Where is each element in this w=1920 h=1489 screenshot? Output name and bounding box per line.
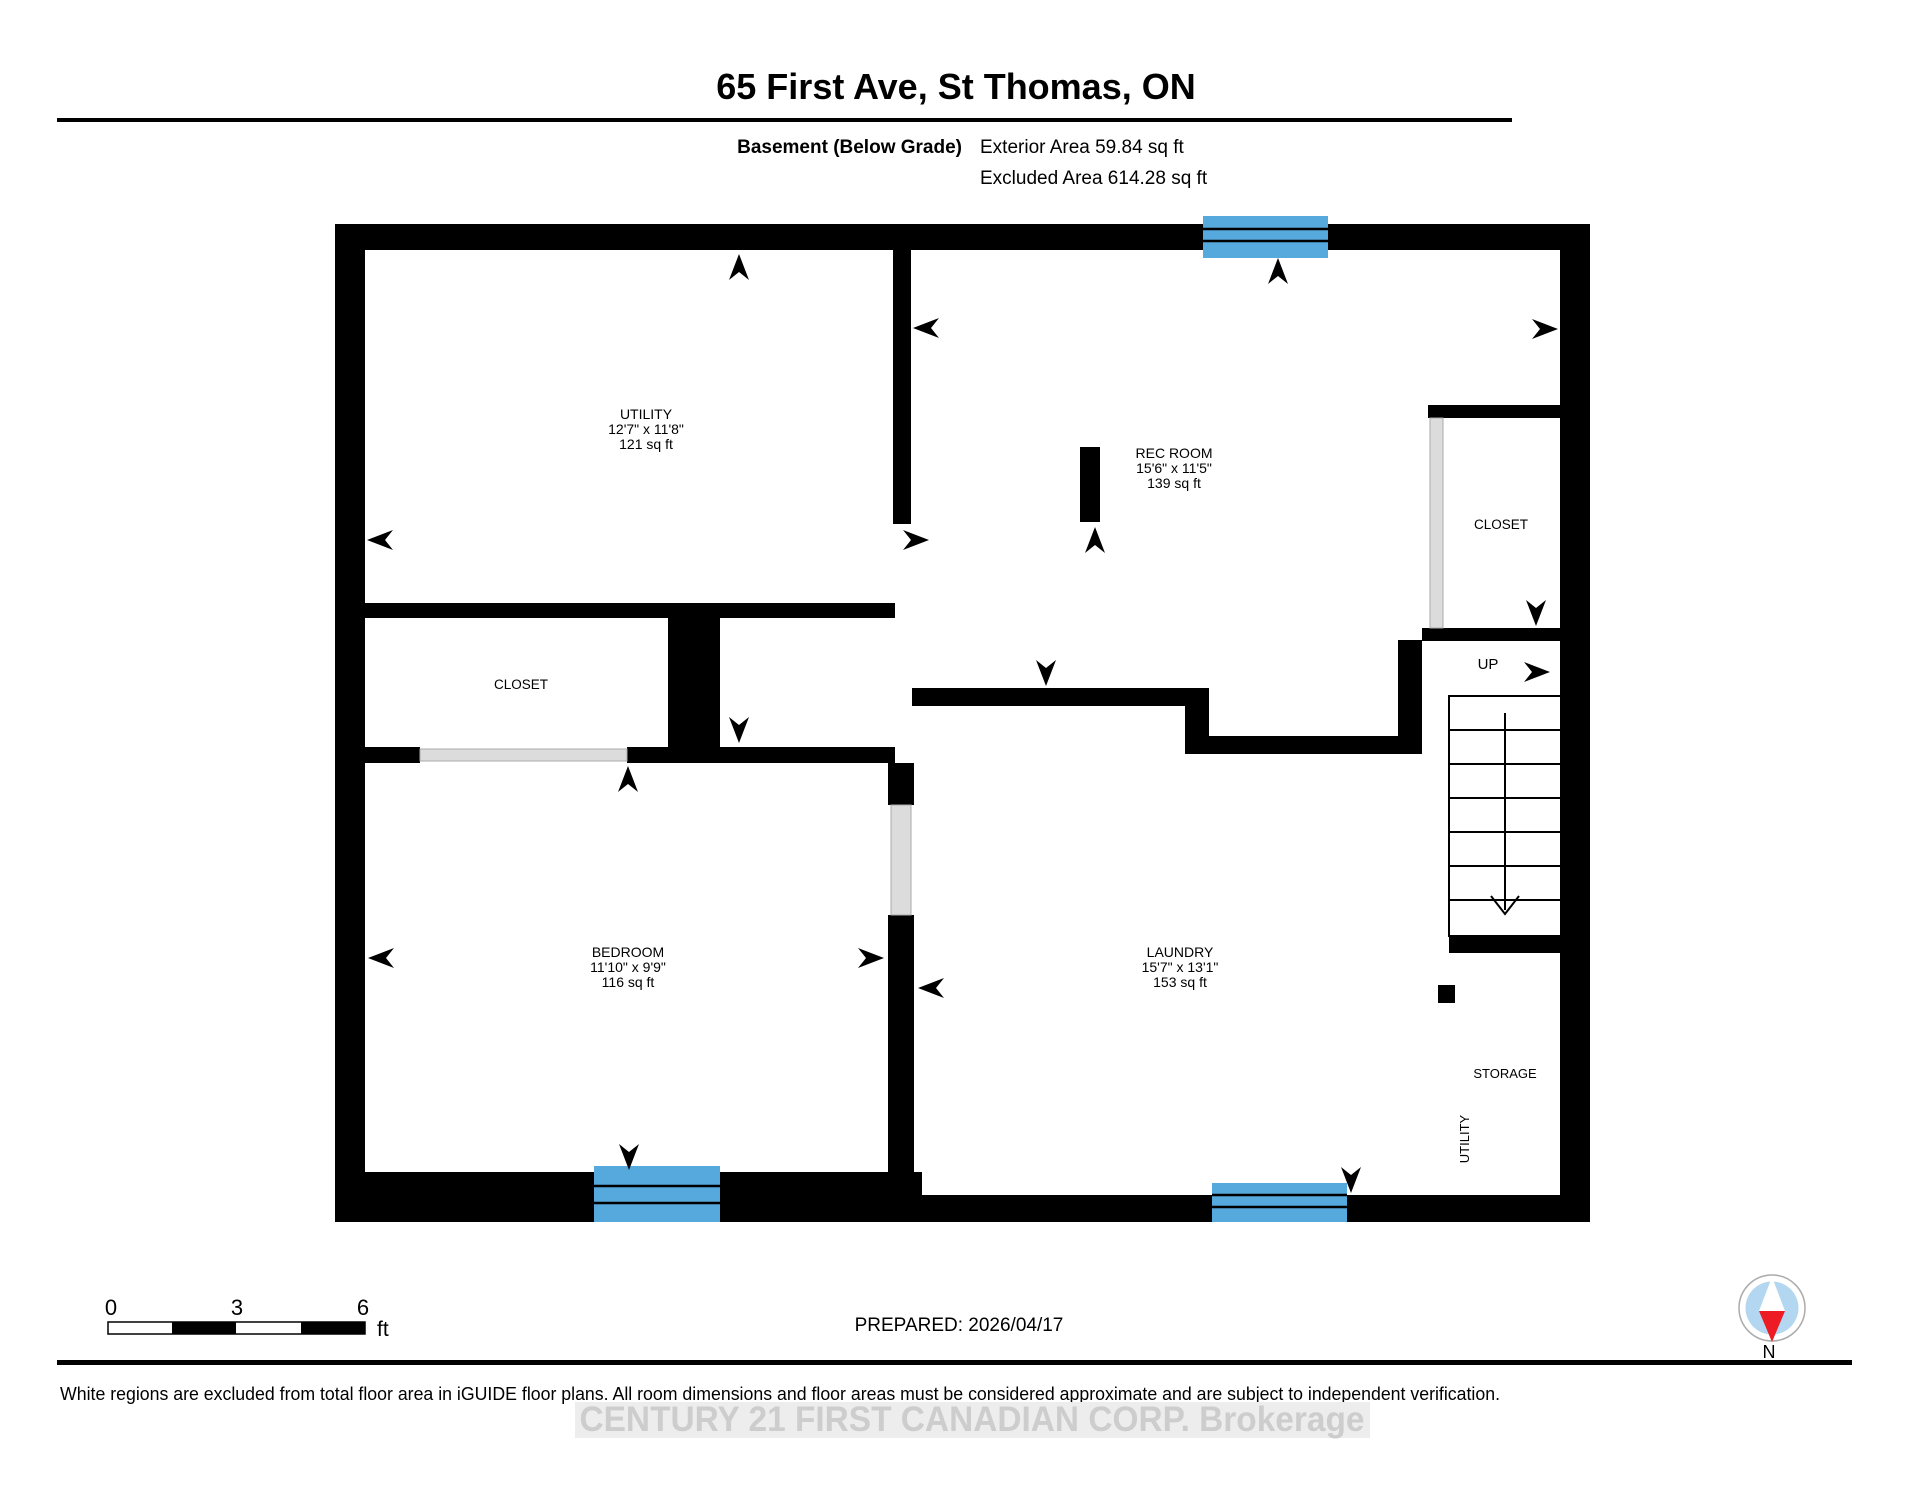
floor-label: Basement (Below Grade) xyxy=(737,137,962,158)
brokerage-watermark: CENTURY 21 FIRST CANADIAN CORP. Brokerag… xyxy=(575,1400,1370,1439)
bedroom-laundry-door xyxy=(891,805,911,915)
room-label-utility: UTILITY 12'7" x 11'8" 121 sq ft xyxy=(608,406,684,452)
floor-plan-canvas: 65 First Ave, St Thomas, ON Basement (Be… xyxy=(0,0,1920,1484)
scale-tick-3: 3 xyxy=(231,1295,243,1320)
direction-arrow-icon xyxy=(368,948,394,968)
header-divider xyxy=(57,118,1512,122)
direction-arrow-icon xyxy=(913,318,939,338)
window-laundry xyxy=(1212,1183,1347,1222)
room-name: LAUNDRY xyxy=(1147,944,1214,960)
direction-arrow-icon xyxy=(1268,258,1288,284)
room-label-laundry: LAUNDRY 15'7" x 13'1" 153 sq ft xyxy=(1142,944,1219,990)
direction-arrow-icon xyxy=(1532,319,1558,339)
room-label-bedroom: BEDROOM 11'10" x 9'9" 116 sq ft xyxy=(590,944,666,990)
direction-arrow-icon xyxy=(1526,600,1546,626)
room-area: 116 sq ft xyxy=(602,974,655,990)
floor-plan-page: { "page": { "title": "65 First Ave, St T… xyxy=(0,0,1920,1484)
room-name: REC ROOM xyxy=(1136,445,1213,461)
staircase xyxy=(1449,696,1561,936)
window-top xyxy=(1203,216,1328,258)
page-title: 65 First Ave, St Thomas, ON xyxy=(716,66,1195,107)
header: 65 First Ave, St Thomas, ON Basement (Be… xyxy=(57,66,1512,189)
direction-arrow-icon xyxy=(1036,660,1056,686)
prepared-date: PREPARED: 2026/04/17 xyxy=(855,1315,1064,1336)
room-name: UTILITY xyxy=(620,406,673,422)
direction-arrows xyxy=(367,254,1558,1193)
window-bedroom xyxy=(594,1166,720,1222)
direction-arrow-icon xyxy=(618,766,638,792)
direction-arrow-icon xyxy=(918,978,944,998)
closet-right-door xyxy=(1430,418,1443,628)
watermark-text: CENTURY 21 FIRST CANADIAN CORP. Brokerag… xyxy=(580,1400,1365,1439)
compass-icon: N xyxy=(1739,1275,1805,1362)
room-name: BEDROOM xyxy=(592,944,664,960)
room-label-rec-room: REC ROOM 15'6" x 11'5" 139 sq ft xyxy=(1136,445,1213,491)
scale-bar: 0 3 6 ft xyxy=(105,1295,389,1341)
doors xyxy=(420,418,1443,915)
scale-unit: ft xyxy=(377,1318,389,1341)
direction-arrow-icon xyxy=(858,948,884,968)
closet-left-door xyxy=(420,749,627,761)
support-column xyxy=(1438,985,1455,1003)
room-label-closet-right: CLOSET xyxy=(1474,517,1528,532)
room-label-utility-small: UTILITY xyxy=(1457,1114,1472,1163)
direction-arrow-icon xyxy=(729,717,749,743)
room-dims: 15'7" x 13'1" xyxy=(1142,959,1219,975)
direction-arrow-icon xyxy=(367,530,393,550)
room-label-closet-left: CLOSET xyxy=(494,677,548,692)
room-dims: 15'6" x 11'5" xyxy=(1136,460,1212,476)
stairs-up-label: UP xyxy=(1478,656,1499,673)
walls xyxy=(335,224,1590,1222)
scale-tick-6: 6 xyxy=(357,1295,369,1320)
room-dims: 11'10" x 9'9" xyxy=(590,959,666,975)
scale-tick-0: 0 xyxy=(105,1295,117,1320)
direction-arrow-icon xyxy=(1085,527,1105,553)
direction-arrow-icon xyxy=(729,254,749,280)
room-area: 153 sq ft xyxy=(1153,974,1207,990)
up-direction-arrow-icon xyxy=(1524,662,1550,682)
direction-arrow-icon xyxy=(903,530,929,550)
footer-divider xyxy=(57,1360,1852,1365)
room-area: 121 sq ft xyxy=(619,436,673,452)
excluded-area-label: Excluded Area 614.28 sq ft xyxy=(980,168,1208,189)
exterior-area-label: Exterior Area 59.84 sq ft xyxy=(980,137,1185,158)
room-area: 139 sq ft xyxy=(1147,475,1201,491)
compass-north-label: N xyxy=(1763,1342,1776,1362)
room-label-storage: STORAGE xyxy=(1473,1066,1537,1081)
room-dims: 12'7" x 11'8" xyxy=(608,421,684,437)
